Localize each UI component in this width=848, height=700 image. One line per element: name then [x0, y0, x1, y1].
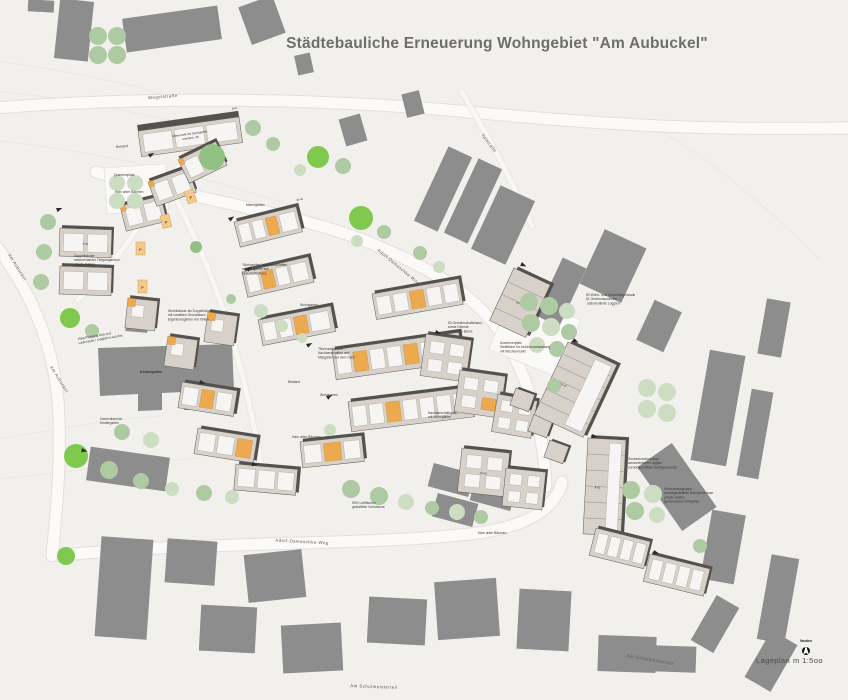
parking-label: P — [139, 247, 142, 252]
page-title: Städtebauliche Erneuerung Wohngebiet "Am… — [286, 35, 708, 52]
annotation-wohngarten-2: Wohngarten — [320, 393, 338, 397]
duplex-house — [204, 309, 240, 346]
senior-housing-slab: II+D — [583, 435, 629, 536]
annotation-quartiersplatz: Quartiersplatz — [114, 173, 135, 177]
annotation-mietergaerten: Mietergärten — [246, 203, 265, 207]
svg-text:Norden: Norden — [800, 639, 812, 643]
duplex-house: II+D — [59, 225, 114, 258]
annotation-wohngarten: Wohngarten — [300, 303, 318, 307]
duplex-house — [125, 295, 160, 331]
parking-label: P — [141, 285, 144, 290]
site-plan-canvas: Mietercafé mit Dachgartenerweitert, 36 I… — [0, 0, 848, 700]
legend-scale: m 1:5oo — [793, 656, 823, 665]
annotation-bestand-2: Bestand — [288, 380, 300, 384]
courtyard-block — [502, 465, 548, 510]
duplex-house — [59, 263, 114, 296]
annotation-hain-3: Hain unter Bäumen — [478, 531, 507, 535]
annotation-hain: Hain unter Bäumen — [115, 190, 144, 194]
annotation-kindergarten: Kindergarten — [140, 370, 162, 374]
row-houses — [234, 461, 301, 496]
site-plan-page: Mietercafé mit Dachgartenerweitert, 36 I… — [0, 0, 848, 700]
legend-plan-type: Lageplan — [756, 656, 790, 665]
svg-text:II+D: II+D — [83, 242, 90, 246]
duplex-house — [164, 333, 200, 370]
annotation-hain-2: Hain unter Bäumen — [292, 435, 321, 439]
svg-text:IV+D: IV+D — [480, 471, 488, 476]
